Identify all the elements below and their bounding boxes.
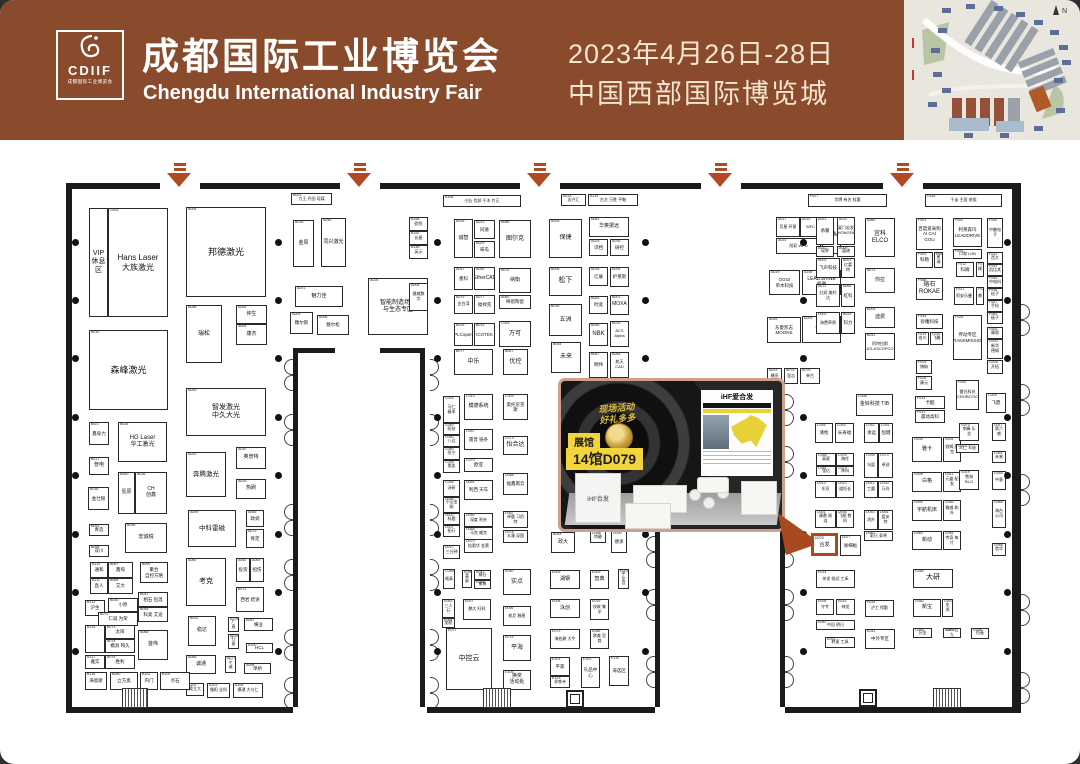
booth[interactable]: D043鸿升	[864, 510, 878, 530]
booth[interactable]: VIP 休息区	[89, 208, 108, 317]
booth-name: 白格	[922, 479, 932, 485]
booth[interactable]: B001MOXA	[610, 295, 629, 315]
booth[interactable]: A077示诚	[225, 656, 236, 673]
booth[interactable]: A019OGGI 单木科技	[769, 270, 800, 295]
booth-name: 首伟	[148, 642, 158, 648]
booth[interactable]: B006邦德激光	[186, 207, 266, 297]
booth[interactable]: D001海费草原	[816, 312, 840, 334]
booth-code: A100	[248, 644, 256, 648]
booth[interactable]: D088福鑫南云	[503, 473, 528, 495]
booth-name: 魅尔松	[326, 322, 340, 327]
booth[interactable]: E005守专	[816, 599, 834, 615]
booth[interactable]: D042彩日 条将	[864, 531, 893, 541]
booth-name: 伯川	[919, 336, 927, 341]
booth[interactable]: A069招伤	[250, 558, 264, 582]
column-dot	[434, 414, 441, 421]
booth-code: B030	[110, 599, 118, 603]
booth[interactable]: C054汤研	[443, 480, 460, 497]
booth[interactable]: E008泳创	[550, 599, 580, 618]
column-dot	[275, 648, 282, 655]
booth[interactable]: G006恒基	[971, 628, 989, 639]
booth[interactable]: D065小山金刚	[443, 497, 460, 513]
booth[interactable]: A081华奥振远	[589, 217, 629, 237]
booth-name: 宇航机床	[917, 508, 937, 514]
booth[interactable]: B054未来	[551, 342, 581, 373]
booth[interactable]: B055科奥 艾迪	[138, 607, 168, 622]
booth[interactable]: D007拓行	[443, 525, 460, 537]
booth[interactable]: F032西大	[987, 252, 1003, 264]
booth-code: C081	[818, 467, 827, 471]
booth-code: A015	[456, 220, 464, 224]
booth[interactable]: A063时宽	[589, 296, 608, 314]
booth[interactable]: C070欧亚	[464, 458, 493, 472]
booth[interactable]: A077福禄克	[474, 295, 495, 314]
booth[interactable]: B073太阳	[105, 625, 135, 639]
booth-code: A075	[786, 369, 794, 373]
booth[interactable]: D017第六感	[992, 423, 1006, 441]
booth[interactable]: A005康杰	[236, 324, 267, 345]
booth[interactable]: G082新宝	[913, 599, 941, 617]
booth[interactable]: A087横业	[244, 618, 273, 631]
booth[interactable]: B068艾大	[108, 578, 133, 594]
booth-name: 元盛 配发	[945, 477, 959, 486]
booth[interactable]: B041相石 恒温	[138, 592, 168, 607]
booth[interactable]: A080映恩陶瓷	[499, 295, 531, 309]
booth[interactable]: C041万可	[499, 321, 531, 347]
booth[interactable]: B067优控	[503, 349, 528, 375]
booth[interactable]: E040实点	[503, 569, 531, 595]
booth[interactable]: D077易细板	[840, 535, 861, 556]
booth-code: C041	[501, 322, 510, 326]
booth[interactable]: F057手粒	[987, 300, 1003, 312]
booth[interactable]: E063三人行	[442, 599, 455, 618]
booth[interactable]: F090中触电子	[987, 218, 1003, 248]
booth[interactable]: A029味岛	[474, 241, 495, 258]
booth[interactable]: G001摩恩	[987, 327, 1003, 339]
booth[interactable]: A001亿富特	[841, 258, 855, 278]
booth[interactable]: A010阳彩 WFD	[776, 238, 821, 254]
booth[interactable]: G001Hans Laser 大族激光	[108, 208, 168, 317]
booth[interactable]: B033ACS Alpha	[610, 321, 629, 347]
booth[interactable]: A055仲生	[236, 305, 267, 324]
booth[interactable]: G033新华 德姆	[987, 339, 1003, 359]
booth-code: B033	[612, 322, 620, 326]
booth[interactable]: A071红润 美利达	[816, 284, 840, 307]
highlighted-booth[interactable]: D079 合发	[811, 533, 838, 556]
booth[interactable]: B077中乐	[454, 349, 493, 375]
booth[interactable]: G008白格	[912, 472, 942, 492]
booth[interactable]: G070李峰 乐北	[959, 423, 979, 441]
booth[interactable]: A079金白湾	[454, 295, 473, 314]
booth[interactable]: B072仁诚 为荣	[98, 612, 138, 626]
booth[interactable]: B016五洲	[549, 304, 582, 336]
booth[interactable]: B053青造	[89, 524, 109, 536]
booth[interactable]: E086欧美 官商	[590, 629, 609, 649]
booth[interactable]: E033神龙	[836, 599, 855, 615]
booth[interactable]: B111直人	[90, 578, 108, 594]
booth[interactable]: F022鼎	[976, 287, 984, 305]
booth[interactable]: A029识档	[589, 239, 608, 256]
booth-code: G055	[994, 472, 1003, 476]
booth-code: D007	[445, 526, 454, 530]
booth[interactable]: A103慢阳 全科	[207, 683, 230, 698]
booth[interactable]: B090聚合 自控方略	[140, 562, 168, 583]
booth[interactable]: B100点石	[160, 672, 190, 690]
booth[interactable]: B058双川	[89, 545, 109, 557]
booth[interactable]: B013ICOTEK	[474, 323, 495, 346]
booth-code: C046	[445, 570, 454, 574]
booth[interactable]: A078归意	[228, 634, 239, 649]
booth[interactable]: E007鹏大 旺科	[463, 599, 491, 620]
booth[interactable]: C034乌篮	[864, 453, 878, 478]
booth[interactable]: A100HCL	[246, 643, 273, 653]
booth[interactable]: D061爱安特	[878, 510, 893, 530]
booth[interactable]: C060八达	[443, 435, 460, 447]
booth[interactable]: E028果典	[474, 580, 491, 589]
booth[interactable]: B009迪费	[865, 307, 895, 328]
booth[interactable]: A065虹科	[841, 284, 855, 307]
booth-code: C047	[466, 430, 475, 434]
booth[interactable]: B158欧恒	[409, 217, 428, 231]
booth[interactable]: F033卡酷	[915, 396, 945, 409]
booth[interactable]: D017三分钟	[443, 545, 460, 559]
booth[interactable]: E073海伯爵 大牛	[550, 629, 580, 649]
booth[interactable]: F056松子	[987, 288, 1003, 300]
booth-name: 松下	[559, 277, 573, 285]
booth-code: A060	[188, 559, 196, 563]
booth[interactable]: E105换奖 活动处	[503, 670, 531, 690]
booth[interactable]: B030小原	[108, 598, 138, 612]
booth[interactable]: D090德承	[611, 531, 627, 553]
booth[interactable]: A098单桥	[244, 663, 271, 674]
booth[interactable]: A034亿展	[589, 267, 608, 286]
booth[interactable]: B017普电	[89, 457, 109, 475]
booth[interactable]: A045EtherCAT	[474, 267, 495, 290]
booth[interactable]: A065政调	[246, 510, 264, 527]
booth[interactable]: A075纳衡	[499, 268, 531, 293]
door-icon	[785, 589, 794, 605]
booth-code: B036	[137, 473, 145, 477]
booth[interactable]: C061未来	[992, 451, 1006, 463]
booth[interactable]: A013同进	[474, 220, 495, 239]
booth[interactable]: F060极子	[987, 312, 1003, 324]
booth[interactable]: B096宏诚锐	[125, 523, 167, 553]
booth[interactable]: F027华牌 有名 桂惠	[808, 194, 887, 207]
booth[interactable]: C047雷普 链条	[464, 429, 493, 450]
booth[interactable]: B038金仕银	[88, 487, 109, 510]
booth[interactable]: B010森峰激光	[89, 330, 168, 410]
booth[interactable]: B016金辰	[293, 220, 314, 267]
booth[interactable]: E123非铁寺	[550, 676, 570, 688]
booth[interactable]: G050宇航机床	[912, 500, 942, 521]
booth[interactable]: E064加桥	[442, 618, 455, 628]
booth[interactable]: E075平海	[503, 635, 531, 661]
booth[interactable]: F021阿安乐曼	[954, 287, 974, 305]
booth[interactable]: A076单古	[800, 368, 820, 384]
booth[interactable]: F013模	[976, 262, 984, 277]
booth[interactable]: C009奥托尼克斯	[503, 394, 528, 420]
booth[interactable]: B087明纬	[589, 352, 608, 378]
booth[interactable]: E095富豪	[462, 570, 472, 588]
booth-name: 深度 利夫	[470, 518, 487, 523]
booth[interactable]: A003飞声科技	[816, 258, 840, 278]
booth[interactable]: G019雪海 BLG	[959, 470, 979, 490]
booth[interactable]: C079李科	[836, 466, 854, 476]
booth[interactable]: G085分金	[913, 628, 932, 638]
booth[interactable]: F068珞石 ROKAE	[916, 278, 943, 300]
booth[interactable]: A025热刷	[236, 479, 266, 499]
booth[interactable]: B055NBK	[589, 323, 608, 346]
booth[interactable]: B027鑫泉力	[89, 422, 109, 445]
booth[interactable]: F050雷谷科技 HCROBOTICS	[956, 380, 979, 410]
booth[interactable]: B074模具 和久	[105, 639, 135, 653]
booth[interactable]: G060新动	[912, 531, 942, 550]
booth[interactable]: C008金铃科技 TIB	[856, 394, 893, 416]
booth[interactable]: A059东菱凯志 MOONS	[767, 317, 801, 343]
booth[interactable]: D067卓鹿 习佰特	[503, 511, 528, 528]
booth-code: G080	[915, 570, 924, 574]
booth[interactable]: A010奔腾激光	[186, 452, 226, 497]
booth[interactable]: C040阳技	[443, 423, 460, 435]
booth[interactable]: B026HG Laser 华工激光	[118, 422, 167, 462]
booth[interactable]: F004星瑞	[934, 252, 943, 268]
booth[interactable]: E103平家	[550, 657, 570, 676]
booth-name: 校联 集学	[592, 605, 607, 614]
booth[interactable]: A009遵谱	[837, 246, 855, 257]
column-dot	[1004, 355, 1011, 362]
booth-code: F020	[932, 333, 940, 337]
booth[interactable]: E053转速 工具	[825, 637, 855, 648]
booth[interactable]: E042中回 明日	[816, 620, 855, 630]
booth[interactable]: F001百度爱采购 AI CAI GOU	[916, 218, 943, 250]
booth[interactable]: C042承远	[864, 423, 879, 443]
booth[interactable]: B148英示	[409, 245, 428, 259]
booth[interactable]: B117雅实	[85, 655, 105, 669]
booth[interactable]: A060宜科 ELCO	[865, 218, 895, 257]
booth[interactable]: B067鑫甸	[108, 562, 133, 578]
booth[interactable]: F005口和 LHB	[953, 249, 982, 259]
booth[interactable]: D013东亚	[815, 481, 836, 498]
booth[interactable]: A005保捷	[549, 219, 582, 258]
door-icon	[1021, 594, 1030, 610]
booth-code: C073	[880, 454, 889, 458]
booth-code: E040	[505, 570, 513, 574]
booth[interactable]: D002科鹿	[443, 513, 460, 525]
booth[interactable]: A073你拉	[865, 268, 895, 293]
booth[interactable]: F031晨动高科	[915, 410, 945, 423]
booth[interactable]: A088图尔克	[499, 220, 531, 258]
booth[interactable]: G080大研	[913, 569, 953, 588]
booth[interactable]: B115	[85, 625, 105, 653]
booth-code: B013	[476, 324, 484, 328]
booth[interactable]: E043威仕	[474, 570, 491, 580]
door-icon	[430, 504, 439, 520]
booth[interactable]: E019校联 集学	[590, 599, 609, 620]
booth[interactable]: A058瑞松	[186, 305, 222, 363]
booth[interactable]: C005飞鼎	[986, 393, 1006, 413]
booth[interactable]: F020飞雕	[930, 332, 943, 345]
booth-code: E008	[552, 600, 560, 604]
booth-code: D001	[818, 313, 827, 317]
booth[interactable]: A001魅力佳	[295, 286, 343, 307]
booth[interactable]: D010道恒长	[836, 481, 854, 498]
booth[interactable]: C041恒健	[879, 423, 893, 443]
booth-name: 糖尔斯	[295, 320, 309, 325]
booth[interactable]: A033志兴汇	[561, 194, 586, 206]
booth[interactable]: E041中外专区	[865, 629, 895, 649]
booth[interactable]: E009湖钢	[550, 570, 580, 589]
booth[interactable]: C043长寿福	[835, 423, 854, 443]
booth[interactable]: A009糖尔斯	[290, 312, 313, 334]
booth[interactable]: A030奥普特	[236, 447, 266, 469]
booth[interactable]: E003智典	[590, 570, 609, 589]
booth[interactable]: F029博纳	[916, 360, 932, 374]
booth[interactable]: A073骨定	[246, 529, 264, 548]
booth[interactable]: F035干亩 主面 老侯	[925, 194, 1002, 207]
booth[interactable]: C073怡合达	[503, 436, 528, 455]
booth[interactable]: C073卓创	[878, 453, 893, 478]
booth[interactable]: A051承蒙	[816, 217, 834, 245]
booth[interactable]: C076海任	[836, 453, 854, 466]
booth[interactable]: F044砂雕科技	[916, 314, 943, 329]
booth[interactable]: A119古方 万胜 平魁	[588, 194, 638, 206]
booth[interactable]: G052雅威 和升	[943, 500, 961, 521]
booth[interactable]: E102礼品中心	[581, 657, 600, 688]
booth[interactable]: D011工圆	[864, 481, 878, 498]
booth[interactable]: B060氢原	[118, 472, 135, 514]
booth[interactable]: A106模潮 大与仁	[233, 683, 263, 698]
booth[interactable]: B029科力	[841, 312, 855, 334]
booth[interactable]: C013模德系统	[464, 394, 493, 420]
booth[interactable]: B032稳达	[188, 616, 216, 646]
booth-name: 海伯爵 大牛	[554, 637, 575, 642]
booth[interactable]: E034泸工 得勤	[865, 600, 894, 617]
booth-code: B041	[140, 593, 148, 597]
booth-name: 第六感	[994, 427, 1004, 436]
booth-name: 投资	[239, 567, 248, 572]
booth[interactable]: E077中控云	[446, 628, 492, 690]
booth[interactable]: A059中科雷磁	[188, 510, 236, 547]
booth-name: 承远	[867, 430, 876, 435]
booth[interactable]: F028康元	[916, 376, 932, 390]
booth[interactable]: G003金鸿	[942, 599, 953, 617]
booth[interactable]: C080恒宁	[443, 447, 460, 460]
booth[interactable]: A008捷威数字	[409, 283, 428, 311]
booth[interactable]: F012科姆	[956, 262, 974, 277]
booth[interactable]: A011现界	[816, 246, 834, 257]
booth-name: 晨动高科	[921, 414, 939, 419]
booth[interactable]: G005开拓	[987, 360, 1003, 374]
booth[interactable]: F019伯川	[916, 332, 929, 345]
booth-name: 直人	[95, 583, 104, 588]
booth[interactable]: B041阿特拉斯 ATLASCOPCO	[865, 333, 895, 360]
booth[interactable]: A076广直	[228, 617, 239, 632]
booth[interactable]: D051利西 天车	[464, 480, 493, 500]
booth[interactable]: A016研控	[610, 239, 629, 256]
booth-name: PLCopen	[454, 332, 473, 337]
booth[interactable]: B036CH 创鑫	[135, 472, 167, 514]
booth[interactable]: C015马仁 春季	[443, 396, 460, 423]
booth-name: 中乐	[467, 359, 479, 366]
booth-code: B075	[107, 656, 115, 660]
booth-name: 海费草原	[820, 321, 836, 326]
booth[interactable]: G030雅卡	[912, 437, 942, 462]
booth[interactable]: F002利莱森玛 LEADDRIVE	[953, 218, 982, 247]
booth[interactable]: F003科勒	[916, 252, 933, 268]
booth-code: D078	[505, 531, 514, 535]
booth[interactable]: A006魅尔松	[317, 315, 349, 335]
booth[interactable]: B118海恩斯	[85, 672, 107, 690]
booth[interactable]: C094奥凯	[443, 460, 460, 473]
booth-code: A073	[867, 269, 875, 273]
booth[interactable]: C045清枪	[815, 423, 833, 443]
door-icon	[646, 656, 655, 672]
booth[interactable]: D078丰漫 深国	[503, 530, 528, 543]
booth[interactable]: D088特静	[590, 531, 606, 543]
booth[interactable]: A060考克	[186, 558, 226, 606]
booth[interactable]: B152长星	[409, 231, 428, 245]
booth-name: 富豪	[464, 574, 470, 583]
booth[interactable]: F053凯比其	[987, 264, 1003, 276]
booth[interactable]: B085航天 CAD	[610, 352, 629, 378]
booth[interactable]: B110通和	[90, 562, 108, 578]
booth[interactable]: A005护莱斯	[610, 267, 629, 287]
booth-code: E086	[592, 630, 600, 634]
booth[interactable]: A088诚通	[186, 655, 216, 674]
booth[interactable]: B054政大	[551, 532, 575, 553]
booth-code: A025	[238, 480, 246, 484]
booth[interactable]: G068首华	[992, 543, 1006, 556]
booth[interactable]: A068首伟	[138, 630, 168, 660]
booth[interactable]: D040深度 利夫	[464, 513, 493, 527]
booth[interactable]: F025传动专区 TRANSMISSION	[953, 315, 982, 360]
booth[interactable]: B003刀王 丹田 培煤	[291, 193, 332, 205]
booth[interactable]: B071西岩 结语	[236, 587, 264, 612]
booth[interactable]: B075胜利	[105, 655, 135, 669]
booth[interactable]: B006松下	[549, 267, 582, 296]
booth[interactable]: C081张亿	[816, 466, 836, 476]
booth[interactable]: A108小壮 优邦 千木 竹正	[443, 195, 521, 207]
booth[interactable]: A062投资	[236, 558, 250, 582]
booth[interactable]: B045智发激光 中久大光	[186, 388, 266, 436]
booth[interactable]: G065海台 公司	[992, 500, 1006, 528]
booth[interactable]: A075里吉	[784, 368, 798, 384]
booth[interactable]: D055飞翔 数科	[836, 510, 854, 528]
booth[interactable]: E006航尼 触星	[503, 606, 531, 626]
booth[interactable]: A015诚智	[454, 219, 473, 258]
booth[interactable]: G079CNC西九	[943, 628, 961, 638]
booth[interactable]: G010众仁 军极	[956, 444, 979, 453]
booth[interactable]: A047墨科	[454, 267, 473, 290]
booth[interactable]: A017尼星 环意	[776, 217, 800, 237]
booth[interactable]: F055中电科	[987, 276, 1003, 288]
booth[interactable]: E110海选区	[609, 656, 629, 686]
booth[interactable]: C068高星	[816, 453, 836, 466]
booth[interactable]: B015PLCopen	[454, 323, 473, 346]
booth[interactable]: E001中华音	[618, 569, 629, 589]
booth[interactable]: C046格真	[443, 569, 455, 589]
booth[interactable]: D030万向	[878, 481, 893, 498]
booth[interactable]: E014茶发 临试 工禾	[816, 570, 855, 588]
booth[interactable]: A045同兴激光	[321, 218, 346, 267]
booth-name: 阿安乐曼	[956, 294, 972, 299]
booth-code: B053	[91, 525, 99, 529]
booth[interactable]: G061传奇 每片	[943, 531, 961, 550]
column-dot	[72, 414, 79, 421]
booth[interactable]: A012厦门宏发 HONGFA	[837, 217, 855, 245]
booth-name: 护莱斯	[613, 274, 627, 279]
booth[interactable]: D070松奥华 金票	[464, 539, 493, 553]
